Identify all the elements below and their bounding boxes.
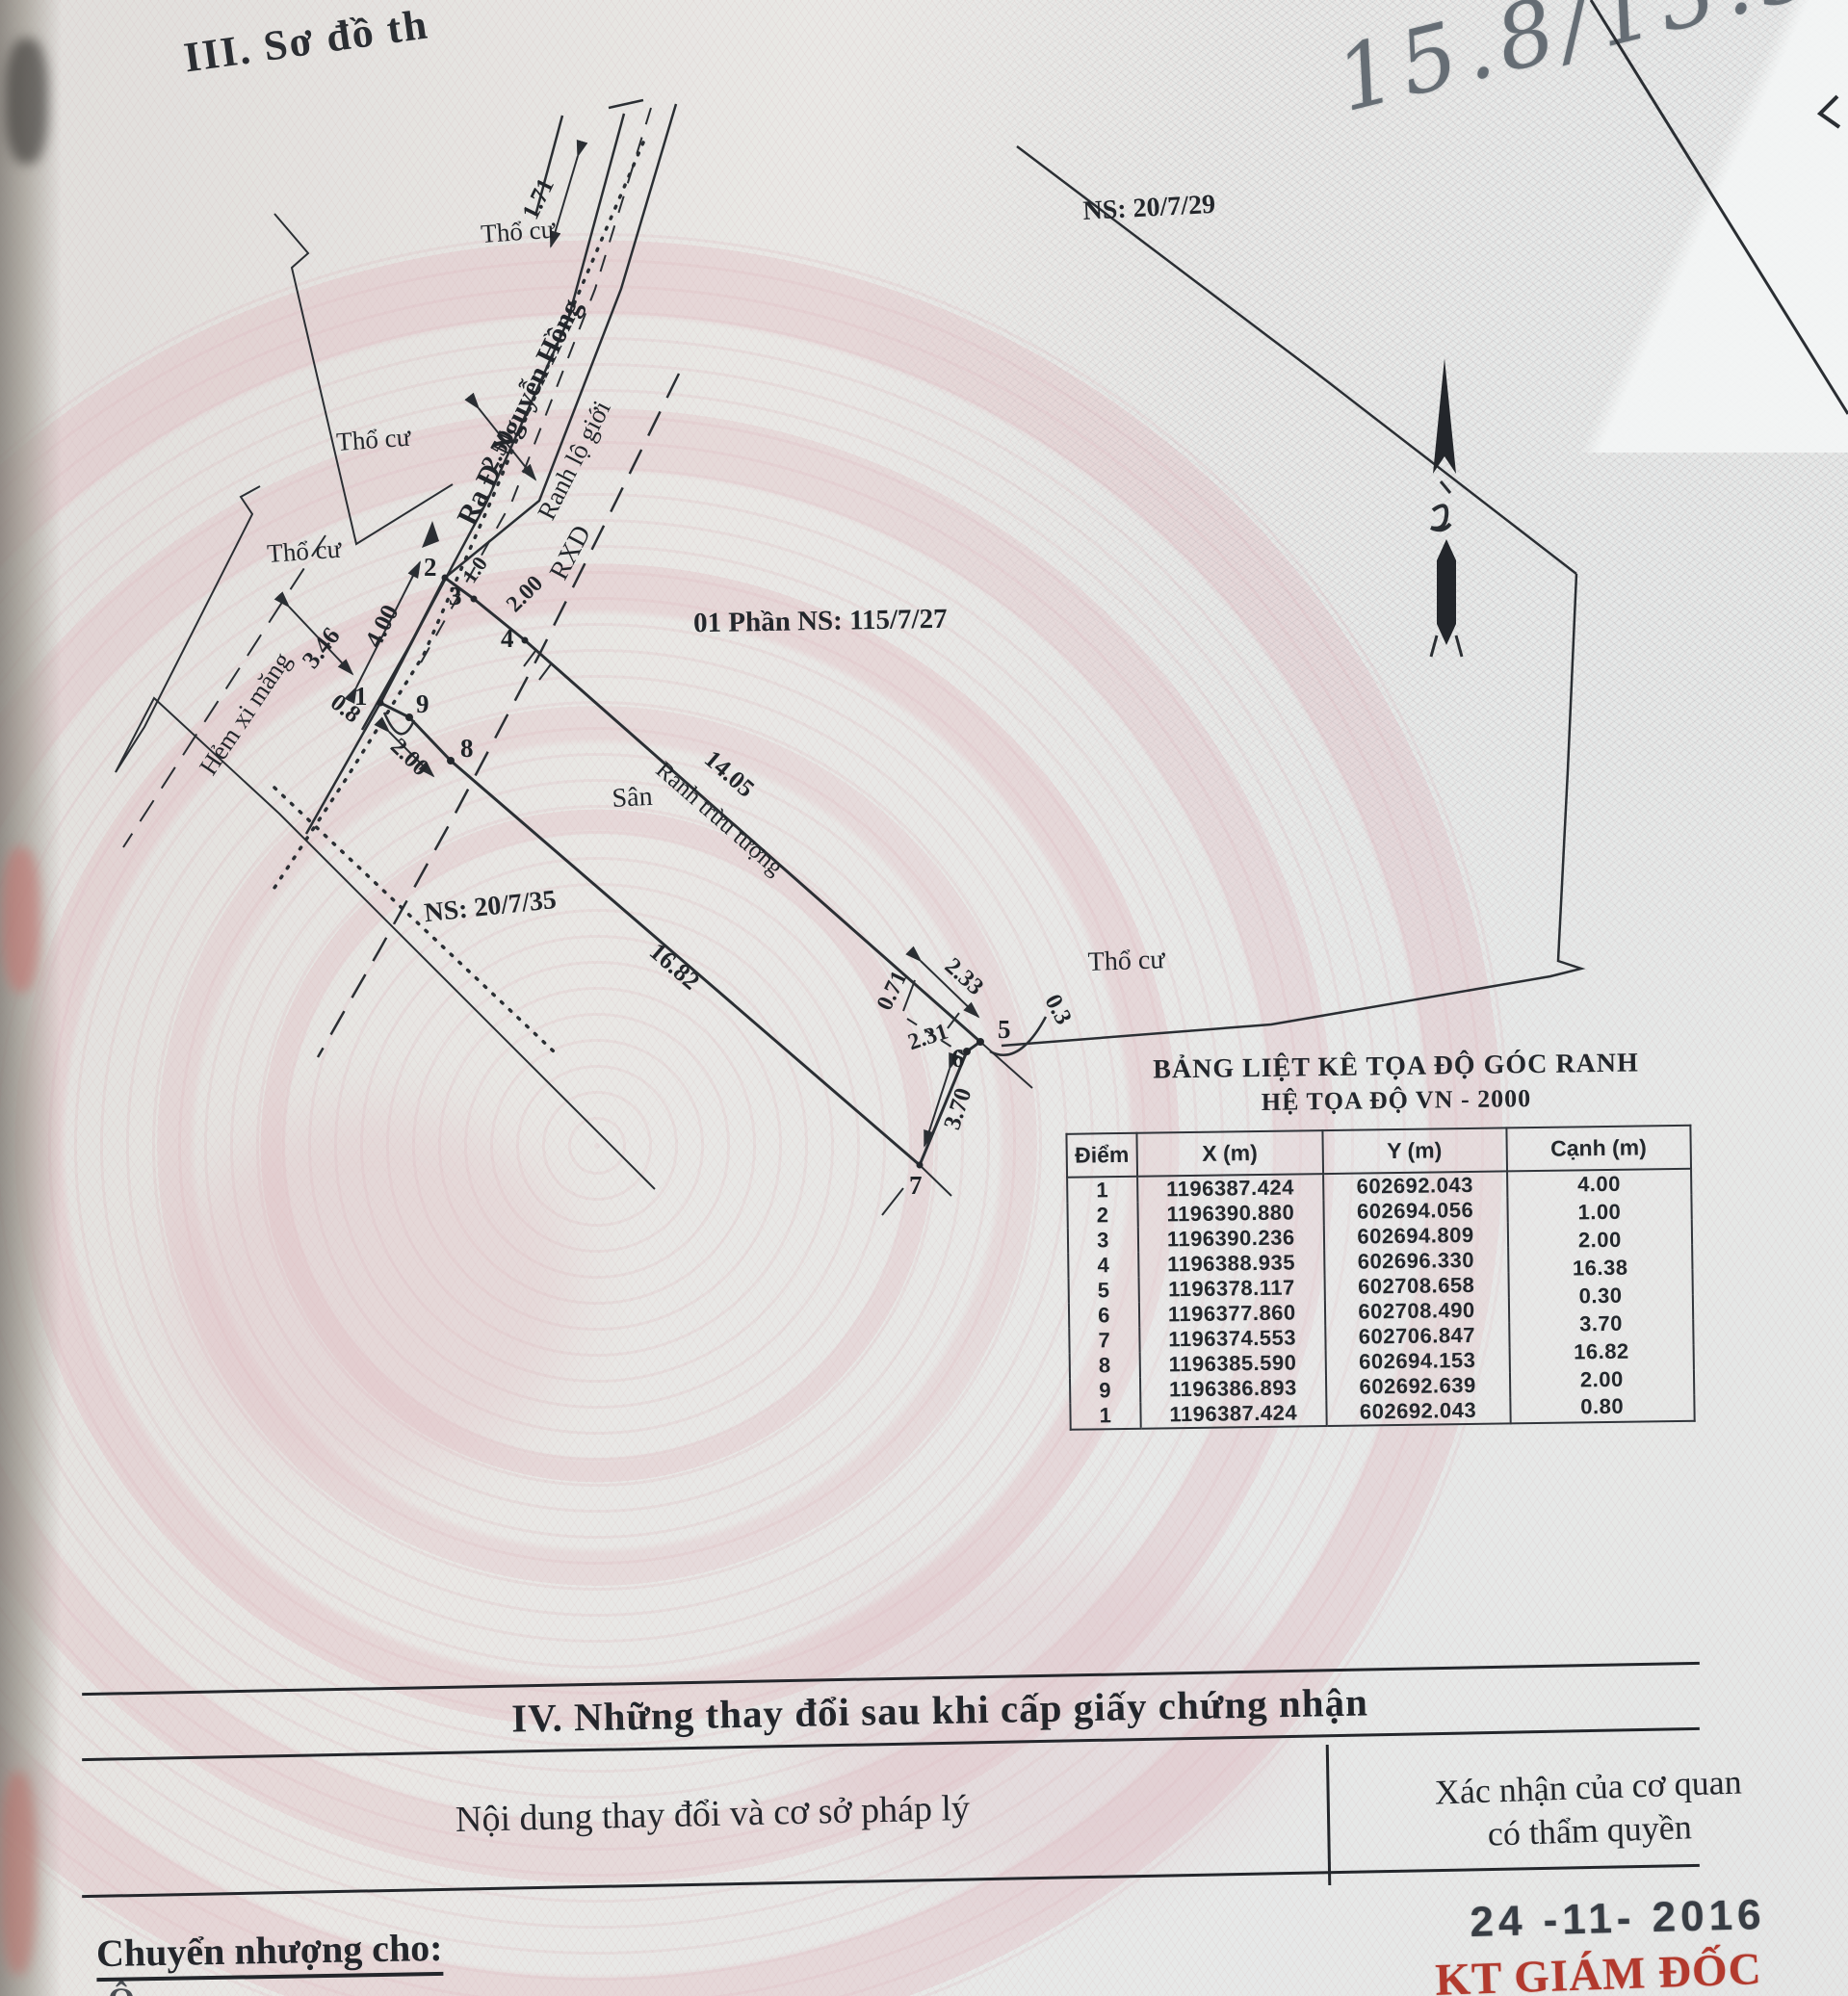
point-label-6: 6 [951, 1044, 965, 1073]
cell-point: 7 [1069, 1328, 1139, 1354]
cell-x: 1196386.893 [1140, 1375, 1326, 1403]
cell-y: 602694.056 [1323, 1197, 1507, 1225]
road-direction-arrowhead [422, 521, 439, 548]
dim-2-31: 2.31 [905, 1019, 951, 1055]
col-header-diem: Điểm [1066, 1133, 1137, 1178]
boundary-extension-7 [920, 1165, 951, 1196]
parcel-vertex-dots [377, 575, 985, 1169]
cell-point: 9 [1070, 1378, 1140, 1404]
neighbor-lower-boundary [116, 698, 655, 1189]
edge-length: 16.38 [1513, 1255, 1688, 1283]
cell-y: 602692.043 [1326, 1397, 1510, 1426]
point-label-5: 5 [998, 1015, 1011, 1044]
coordinate-table-subtitle: HỆ TỌA ĐỘ VN - 2000 [1065, 1081, 1728, 1120]
point-label-2: 2 [424, 553, 437, 582]
col-header-x: X (m) [1136, 1130, 1322, 1177]
point-label-7: 7 [909, 1171, 923, 1200]
neighbor-left-boundary-a [274, 214, 453, 544]
coordinate-table: Điểm X (m) Y (m) Cạnh (m) 1 1196387.424 … [1065, 1125, 1695, 1431]
cell-point: 4 [1068, 1253, 1138, 1279]
edge-length: 1.00 [1512, 1199, 1687, 1227]
fold-line [1591, 0, 1848, 414]
label-ranh-lo-gioi: Ranh lộ giới [532, 396, 616, 524]
cell-x: 1196377.860 [1139, 1300, 1325, 1328]
label-tho-cu-4: Thổ cư [1087, 945, 1166, 977]
coordinate-table-block: BẢNG LIỆT KÊ TỌA ĐỘ GÓC RANH HỆ TỌA ĐỘ V… [1064, 1047, 1731, 1431]
cell-y: 602692.043 [1323, 1171, 1507, 1200]
cell-point: 1 [1070, 1403, 1140, 1430]
cell-y: 602694.809 [1323, 1222, 1507, 1250]
cell-y: 602708.490 [1324, 1297, 1508, 1325]
north-arrow [1431, 358, 1462, 657]
cell-point: 5 [1069, 1278, 1139, 1304]
cell-x: 1196387.424 [1140, 1400, 1326, 1429]
point-label-4: 4 [501, 624, 514, 653]
edge-length: 4.00 [1512, 1171, 1687, 1199]
cell-y: 602694.153 [1325, 1347, 1509, 1375]
edge-length: 16.82 [1514, 1337, 1689, 1365]
cell-point: 2 [1067, 1203, 1137, 1229]
alley-dotted-line [274, 788, 554, 1051]
dim-0-3: 0.3 [1039, 990, 1077, 1028]
dim-0-71: 0.71 [872, 967, 913, 1014]
dim-3-46: 3.46 [297, 622, 346, 674]
cell-edge-column: 4.00 1.00 2.00 16.38 0.30 3.70 16.82 2.0… [1507, 1169, 1695, 1424]
col-header-canh: Cạnh (m) [1506, 1126, 1691, 1172]
next-line-start: Ô [108, 1980, 135, 1996]
cell-x: 1196390.236 [1138, 1225, 1324, 1253]
boundary-extension-5 [980, 1042, 1032, 1088]
label-tho-cu-3: Thổ cư [266, 534, 343, 568]
dim-2-33: 2.33 [940, 953, 989, 1000]
edge-length: 2.00 [1512, 1227, 1687, 1255]
point-label-3: 3 [449, 582, 462, 610]
transfer-label: Chuyển nhượng cho: [96, 1925, 443, 1982]
tick-point-7 [882, 1188, 903, 1215]
label-phan-ns: 01 Phần NS: 115/7/27 [693, 604, 948, 639]
cell-x: 1196388.935 [1138, 1250, 1324, 1278]
edge-chevron-mark [1820, 96, 1839, 127]
dim-2-00-a: 2.00 [502, 571, 548, 617]
label-ns-20-7-29: NS: 20/7/29 [1082, 190, 1216, 226]
parcel-boundary [380, 578, 980, 1165]
dim-2-00-b: 2.00 [385, 734, 433, 782]
alley-dashed-line [123, 535, 325, 847]
label-ns-20-7-35: NS: 20/7/35 [423, 885, 558, 928]
edge-length: 2.00 [1514, 1365, 1689, 1393]
dim-16-82: 16.82 [644, 937, 705, 995]
cell-y: 602696.330 [1324, 1247, 1508, 1275]
edge-length: 0.80 [1515, 1393, 1690, 1421]
tick-point-4 [524, 651, 551, 680]
dim-3-70: 3.70 [939, 1085, 976, 1133]
cell-point: 1 [1067, 1177, 1137, 1204]
cell-y: 602692.639 [1325, 1372, 1509, 1400]
cell-y: 602708.658 [1324, 1272, 1508, 1300]
edge-length: 0.30 [1513, 1283, 1688, 1310]
cell-x: 1196387.424 [1137, 1174, 1323, 1203]
cell-x: 1196374.553 [1139, 1325, 1325, 1353]
label-tho-cu-1: Thổ cư [480, 215, 557, 248]
col-header-y: Y (m) [1322, 1128, 1507, 1174]
point-label-8: 8 [460, 734, 474, 763]
label-tho-cu-2: Thổ cư [335, 423, 412, 456]
label-san: Sân [612, 782, 654, 814]
point-label-1: 1 [354, 682, 368, 711]
cell-y: 602706.847 [1325, 1322, 1509, 1350]
edge-length-list: 4.00 1.00 2.00 16.38 0.30 3.70 16.82 2.0… [1512, 1170, 1690, 1423]
cell-x: 1196390.880 [1137, 1200, 1323, 1228]
point-label-9: 9 [416, 689, 429, 718]
section4-right-header: Xác nhận của cơ quan có thẩm quyền [1366, 1758, 1812, 1860]
cell-point: 8 [1070, 1353, 1140, 1379]
cell-x: 1196378.117 [1139, 1275, 1325, 1303]
cell-x: 1196385.590 [1140, 1350, 1326, 1378]
cell-point: 3 [1068, 1228, 1138, 1254]
road-end-tick [609, 100, 643, 108]
edge-length: 3.70 [1514, 1310, 1689, 1338]
cell-point: 6 [1069, 1303, 1139, 1329]
dim-1-0: 1.0 [457, 552, 492, 587]
label-rxd: RXD [544, 521, 597, 585]
scanned-certificate-page: III. Sơ đồ th 15.8/13.5 [0, 0, 1848, 1996]
